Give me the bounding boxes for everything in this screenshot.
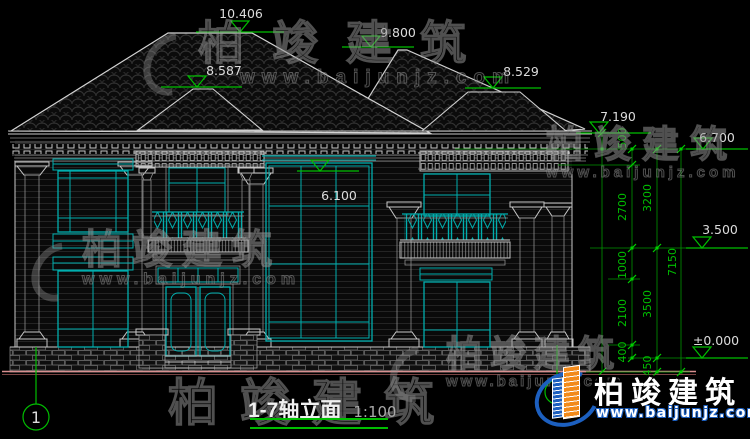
watermark-brand: 柏竣建筑: [82, 228, 282, 272]
watermark-url: www.baijunjz.com: [546, 165, 739, 180]
dim-value: 3200: [641, 184, 654, 212]
title-underline: [250, 418, 388, 429]
svg-text:1: 1: [31, 408, 41, 427]
brand-logo: 柏竣建筑 www.baijunjz.com: [532, 358, 750, 439]
elevation-marker: 3.500: [686, 222, 748, 248]
logo-building-icon: [552, 377, 563, 419]
dim-value: 2700: [616, 193, 629, 221]
svg-text:±0.000: ±0.000: [693, 333, 739, 348]
elevation-marker: ±0.000: [686, 333, 748, 358]
watermark-brand: 柏竣建筑: [546, 124, 738, 165]
watermark: 柏竣建筑 www.baijunjz.com: [198, 20, 516, 87]
cad-elevation-screenshot: { "page": {"width": 750, "height": 439, …: [0, 0, 750, 439]
balcony-slab: [400, 242, 510, 258]
dim-value: 2100: [616, 299, 629, 327]
dim-value: 1000: [616, 251, 629, 279]
watermark: 柏竣建筑 www.baijunjz.com: [82, 230, 300, 288]
dim-value: 3500: [641, 290, 654, 318]
logo-building-icon: [563, 365, 580, 419]
watermark: 柏竣建筑 www.baijunjz.com: [546, 126, 739, 180]
watermark-brand: 柏竣建筑: [198, 17, 494, 69]
watermark-url: www.baijunjz.com: [240, 68, 516, 87]
svg-text:3.500: 3.500: [702, 222, 738, 237]
svg-text:6.100: 6.100: [321, 188, 357, 203]
door-pedestal: [228, 329, 260, 368]
door-pedestal: [136, 329, 168, 368]
svg-text:7.190: 7.190: [600, 109, 636, 124]
logo-url-text: www.baijunjz.com: [596, 405, 750, 421]
watermark-url: www.baijunjz.com: [82, 272, 300, 288]
dim-value: 7150: [666, 248, 679, 276]
